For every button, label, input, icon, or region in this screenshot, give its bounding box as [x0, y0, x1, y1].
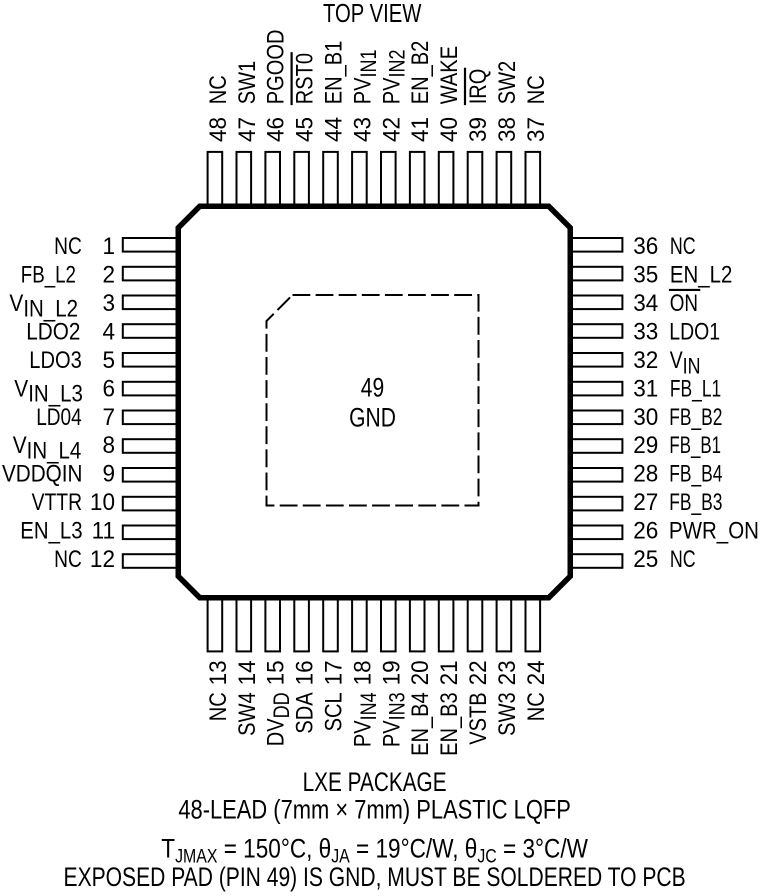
- svg-text:15: 15: [262, 660, 289, 685]
- svg-text:5: 5: [102, 346, 115, 373]
- svg-text:47: 47: [233, 117, 260, 142]
- svg-text:27: 27: [633, 488, 658, 515]
- svg-text:NC: NC: [670, 545, 696, 572]
- svg-text:GND: GND: [349, 403, 396, 433]
- svg-text:11: 11: [92, 517, 115, 544]
- svg-text:35: 35: [633, 261, 658, 288]
- svg-text:14: 14: [233, 660, 260, 685]
- svg-text:LDO1: LDO1: [669, 317, 720, 345]
- svg-text:VSTB: VSTB: [464, 692, 491, 744]
- svg-text:20: 20: [406, 660, 433, 685]
- svg-text:PGOOD: PGOOD: [262, 30, 289, 105]
- svg-text:41: 41: [406, 117, 433, 142]
- svg-text:NC: NC: [522, 75, 549, 104]
- svg-text:LDO2: LDO2: [26, 317, 80, 345]
- svg-text:VTTR: VTTR: [32, 488, 82, 516]
- svg-text:EN_B2: EN_B2: [406, 41, 433, 105]
- svg-text:LD04: LD04: [36, 402, 82, 430]
- svg-text:10: 10: [90, 488, 115, 515]
- svg-text:LXE PACKAGE: LXE PACKAGE: [303, 768, 447, 798]
- svg-text:40: 40: [435, 117, 462, 142]
- svg-text:EN_L3: EN_L3: [20, 517, 82, 544]
- svg-text:28: 28: [633, 460, 658, 487]
- svg-text:26: 26: [633, 517, 658, 544]
- svg-text:49: 49: [361, 373, 384, 403]
- svg-text:RST0: RST0: [291, 53, 318, 104]
- svg-text:NC: NC: [54, 545, 82, 573]
- svg-text:TOP VIEW: TOP VIEW: [323, 0, 421, 27]
- svg-text:EN_B4: EN_B4: [406, 692, 433, 756]
- svg-text:36: 36: [633, 232, 658, 259]
- svg-text:FB_L2: FB_L2: [21, 260, 76, 288]
- svg-text:37: 37: [522, 117, 549, 142]
- svg-text:45: 45: [291, 117, 318, 142]
- svg-text:42: 42: [377, 117, 404, 142]
- svg-text:4: 4: [102, 318, 115, 345]
- svg-text:FB_B2: FB_B2: [669, 403, 722, 431]
- svg-text:FB_L1: FB_L1: [670, 374, 721, 402]
- svg-text:16: 16: [291, 660, 318, 685]
- svg-text:12: 12: [90, 545, 115, 572]
- svg-text:13: 13: [204, 660, 231, 685]
- svg-text:IRQ: IRQ: [464, 69, 491, 105]
- svg-text:SW1: SW1: [233, 61, 260, 105]
- svg-text:EXPOSED PAD (PIN 49) IS GND, M: EXPOSED PAD (PIN 49) IS GND, MUST BE SOL…: [64, 863, 686, 893]
- svg-text:24: 24: [522, 660, 549, 685]
- svg-text:18: 18: [349, 660, 376, 685]
- svg-text:48: 48: [204, 117, 231, 142]
- svg-text:FB_B4: FB_B4: [669, 460, 722, 488]
- svg-text:EN_B1: EN_B1: [320, 41, 347, 105]
- svg-text:PWR_ON: PWR_ON: [669, 517, 759, 544]
- svg-text:9: 9: [102, 460, 115, 487]
- svg-text:FB_B1: FB_B1: [669, 432, 721, 459]
- svg-text:29: 29: [633, 431, 658, 458]
- svg-text:33: 33: [633, 318, 658, 345]
- svg-text:1: 1: [102, 232, 115, 259]
- svg-text:6: 6: [102, 374, 115, 401]
- svg-text:19: 19: [377, 660, 404, 685]
- svg-text:21: 21: [435, 660, 462, 685]
- svg-text:SW2: SW2: [493, 61, 520, 105]
- svg-text:17: 17: [320, 660, 347, 685]
- svg-text:8: 8: [102, 431, 115, 458]
- svg-text:46: 46: [262, 117, 289, 142]
- svg-text:3: 3: [102, 289, 115, 316]
- svg-text:LDO3: LDO3: [29, 346, 81, 373]
- svg-text:EN_B3: EN_B3: [435, 692, 462, 756]
- svg-text:38: 38: [493, 117, 520, 142]
- svg-text:NC: NC: [670, 232, 696, 259]
- svg-text:22: 22: [464, 660, 491, 685]
- svg-text:25: 25: [633, 545, 658, 572]
- svg-text:SW3: SW3: [493, 692, 520, 736]
- svg-text:2: 2: [102, 261, 115, 288]
- svg-text:43: 43: [349, 117, 376, 142]
- svg-text:23: 23: [493, 660, 520, 685]
- svg-text:SCL: SCL: [320, 692, 347, 731]
- svg-text:48-LEAD (7mm × 7mm) PLASTIC LQ: 48-LEAD (7mm × 7mm) PLASTIC LQFP: [178, 795, 571, 825]
- svg-text:NC: NC: [204, 692, 231, 721]
- svg-text:SDA: SDA: [291, 692, 318, 733]
- svg-text:39: 39: [464, 117, 491, 142]
- svg-text:VDDQIN: VDDQIN: [2, 459, 82, 487]
- svg-text:SW4: SW4: [233, 692, 260, 736]
- svg-text:ON: ON: [670, 289, 698, 317]
- svg-text:EN_L2: EN_L2: [670, 261, 732, 288]
- svg-text:NC: NC: [522, 692, 549, 721]
- svg-text:31: 31: [633, 374, 658, 401]
- svg-text:30: 30: [633, 403, 658, 430]
- svg-text:34: 34: [633, 289, 658, 316]
- svg-text:WAKE: WAKE: [435, 46, 462, 104]
- svg-text:44: 44: [320, 117, 347, 142]
- svg-text:7: 7: [102, 403, 115, 430]
- svg-text:32: 32: [633, 346, 658, 373]
- svg-text:NC: NC: [54, 232, 82, 260]
- svg-text:FB_B3: FB_B3: [669, 488, 722, 516]
- svg-text:NC: NC: [204, 75, 231, 104]
